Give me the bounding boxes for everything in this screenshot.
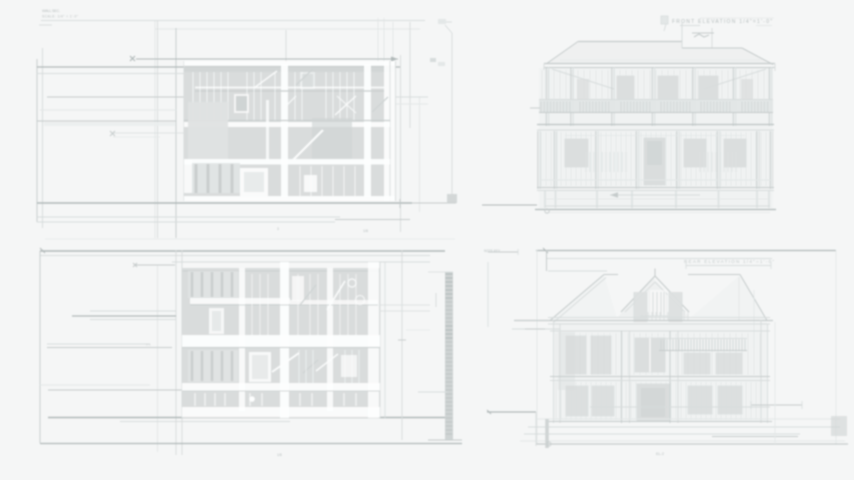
svg-text:1/8: 1/8 [277, 453, 282, 457]
svg-text:EL-2: EL-2 [656, 452, 664, 456]
svg-text:FRONT ELEVATION 1/4"=1'-0": FRONT ELEVATION 1/4"=1'-0" [672, 19, 772, 25]
svg-text:SCALE: 1/4" = 1'-0": SCALE: 1/4" = 1'-0" [42, 15, 79, 19]
svg-text:1/8: 1/8 [363, 229, 368, 233]
svg-text:3: 3 [277, 227, 279, 231]
svg-text:REAR ELEVATION 1/4"=1'-0": REAR ELEVATION 1/4"=1'-0" [684, 259, 774, 264]
svg-text:= =: = = [146, 343, 151, 347]
svg-text:WALL SEC.: WALL SEC. [42, 9, 60, 13]
